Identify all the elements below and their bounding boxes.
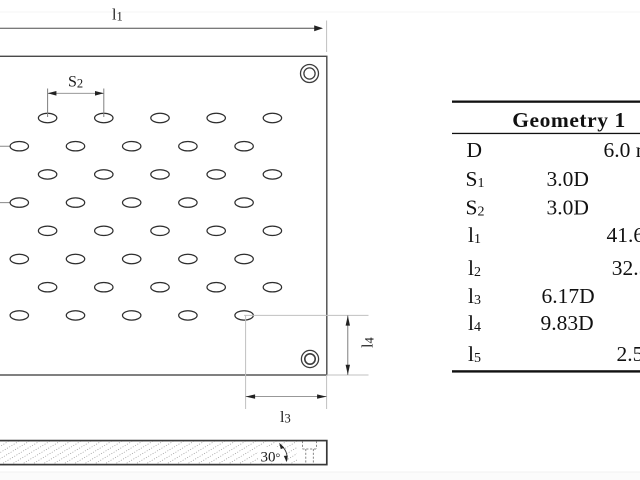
svg-text:6.17D: 6.17D — [542, 284, 595, 308]
svg-text:S2: S2 — [466, 196, 485, 220]
svg-text:41.67D: 41.67D — [607, 223, 640, 247]
svg-text:9.83D: 9.83D — [541, 311, 594, 335]
svg-text:Geometry 1: Geometry 1 — [512, 108, 626, 132]
svg-text:l4: l4 — [468, 311, 481, 335]
svg-text:3.0D: 3.0D — [547, 167, 589, 191]
svg-text:6.0 mm: 6.0 mm — [604, 138, 640, 162]
svg-text:30°: 30° — [261, 450, 281, 466]
svg-text:S1: S1 — [466, 167, 485, 191]
svg-text:S2: S2 — [68, 74, 83, 91]
svg-text:l3: l3 — [468, 284, 481, 308]
svg-text:3.0D: 3.0D — [547, 196, 589, 220]
svg-text:l2: l2 — [468, 256, 481, 280]
svg-text:l1: l1 — [468, 223, 481, 247]
svg-text:D: D — [467, 138, 483, 162]
svg-text:l5: l5 — [468, 342, 481, 366]
svg-text:32.5D: 32.5D — [612, 256, 640, 280]
svg-text:l4: l4 — [360, 337, 377, 348]
svg-text:2.5D: 2.5D — [617, 342, 640, 366]
svg-text:l1: l1 — [112, 7, 123, 24]
svg-text:l3: l3 — [280, 409, 291, 426]
